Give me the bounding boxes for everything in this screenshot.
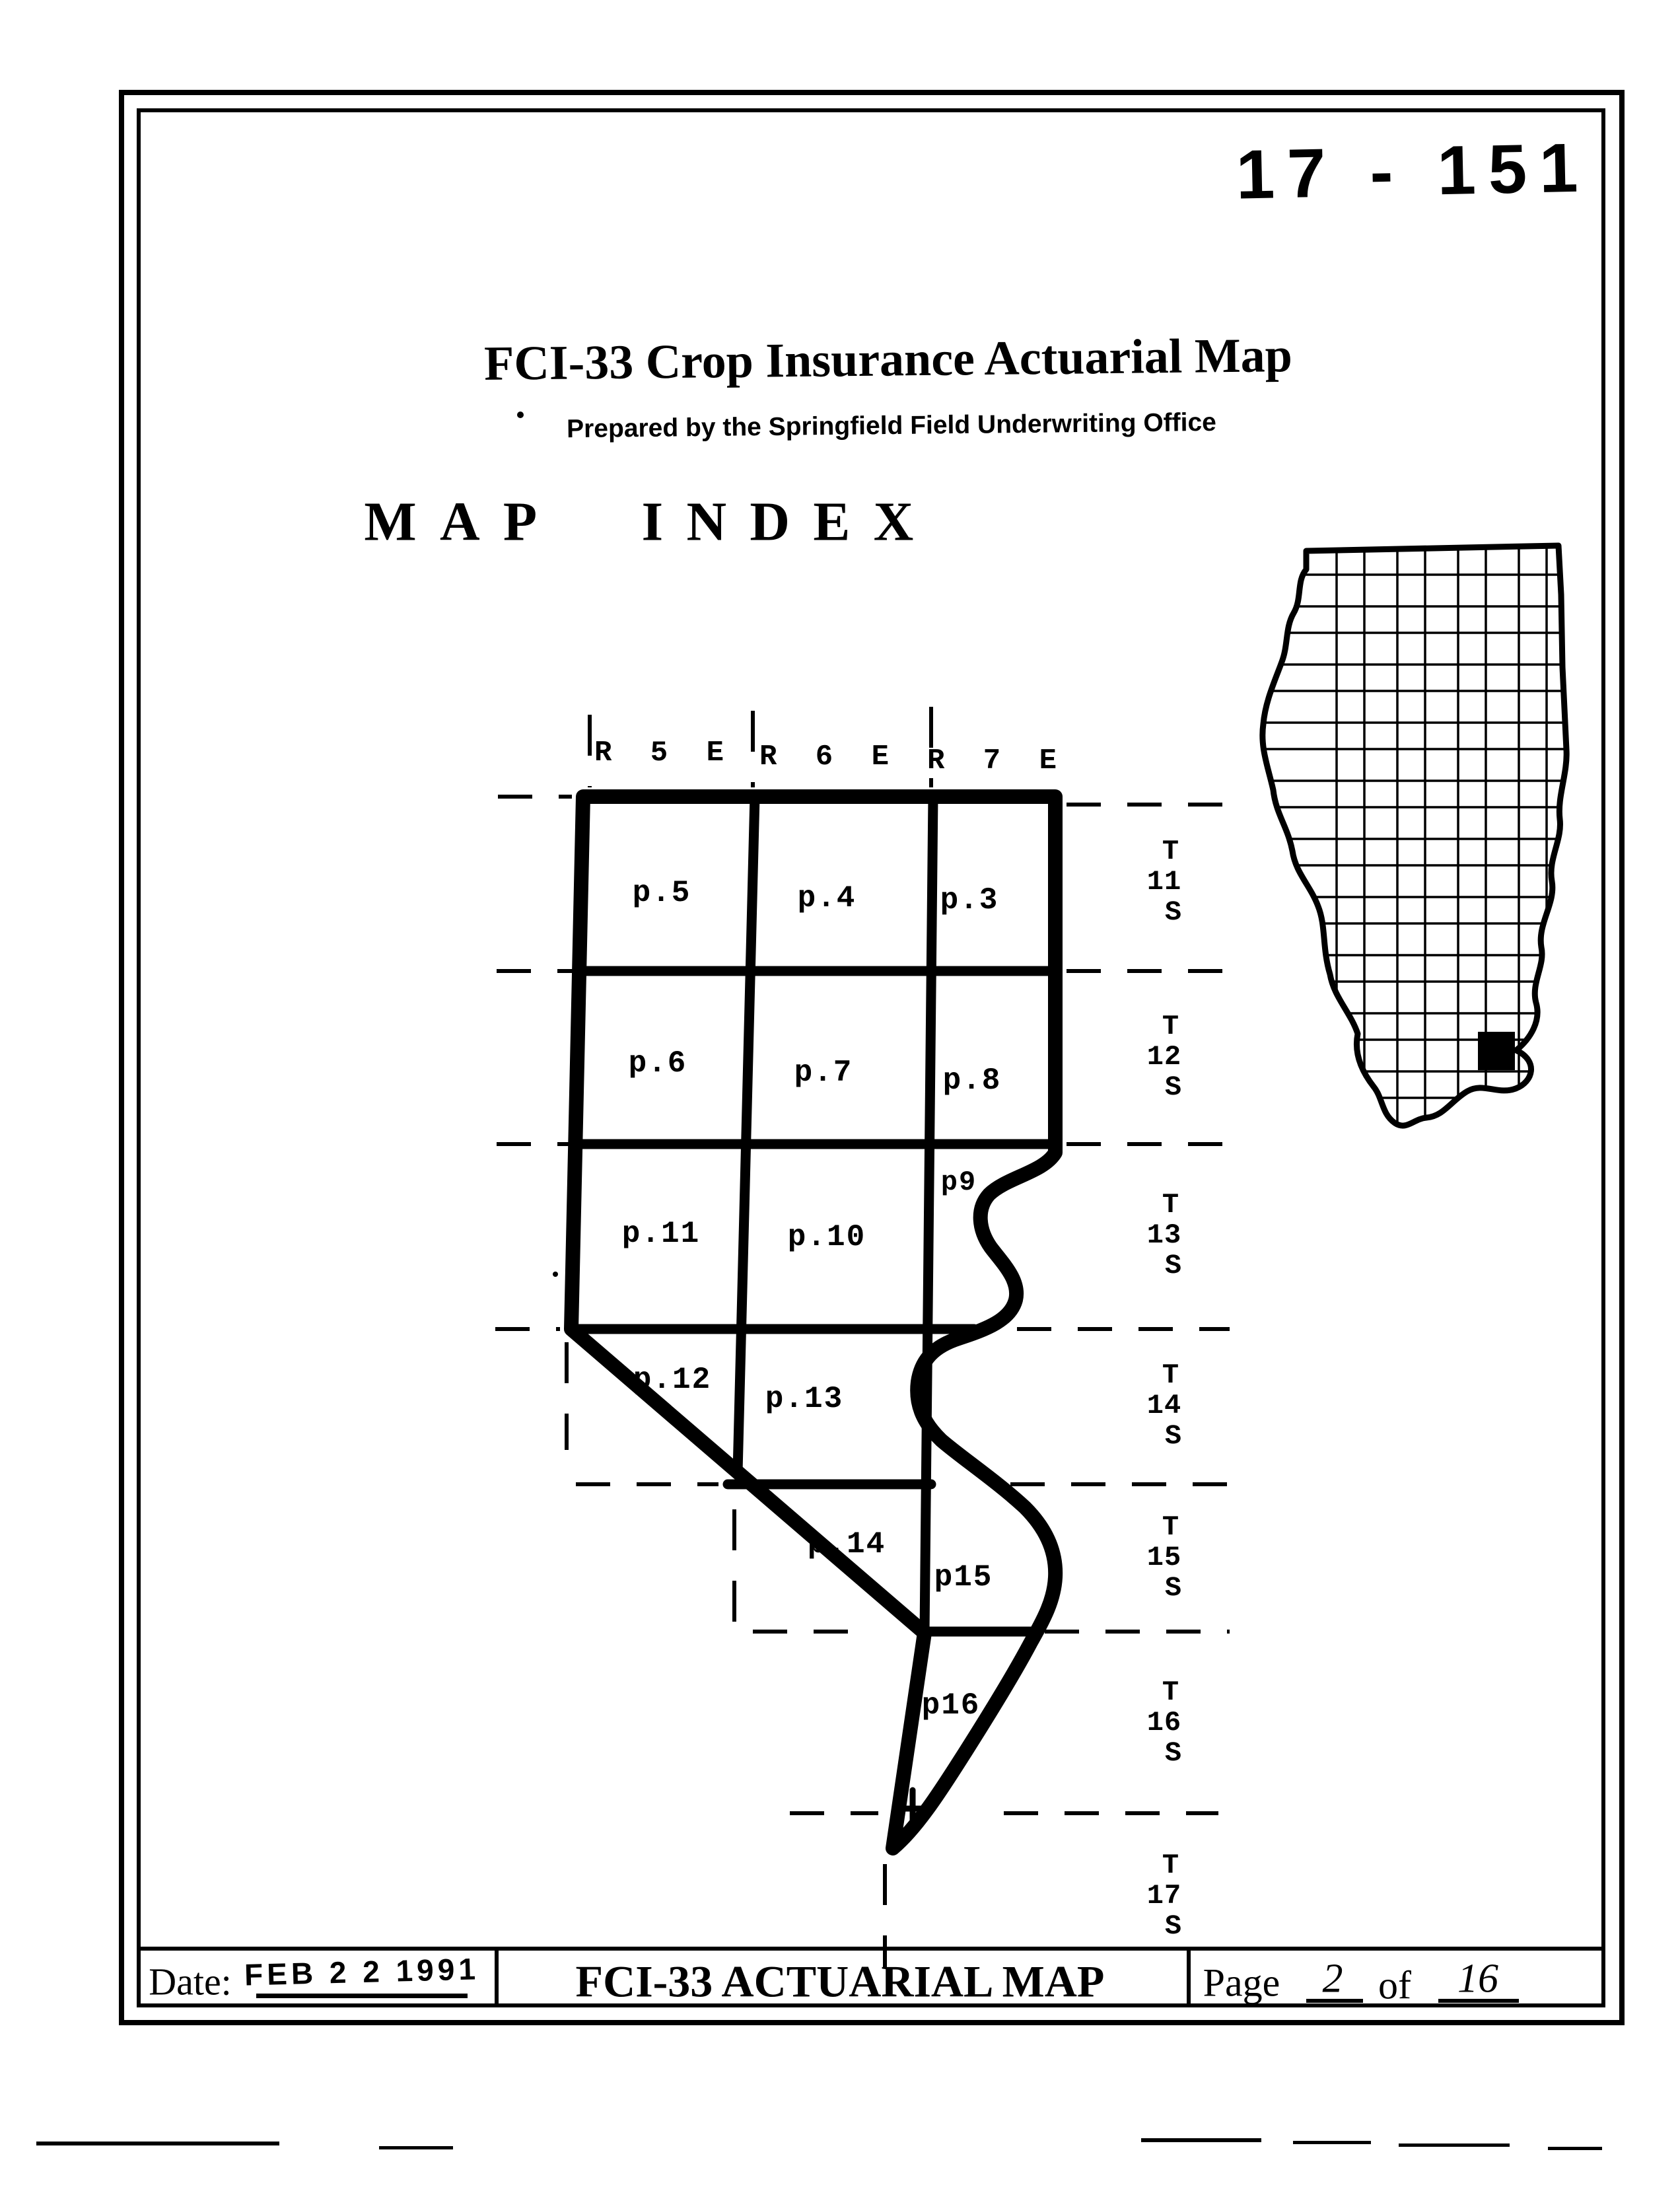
township-label-t14s: T (1162, 1359, 1179, 1391)
page-total-underline (1438, 1999, 1519, 2003)
township-label-t17s: S (1165, 1910, 1182, 1942)
township-label-t16s: T (1162, 1676, 1179, 1708)
township-label-t13s: S (1165, 1250, 1182, 1281)
township-label-t11s: T (1162, 836, 1179, 867)
map-outer-boundary (571, 797, 1055, 1848)
footer-title: FCI-33 ACTUARIAL MAP (576, 1956, 1105, 2008)
map-cell-label-p8: p.8 (943, 1063, 1002, 1098)
page-artwork (0, 0, 1680, 2197)
map-cell-label-p6: p.6 (629, 1046, 687, 1081)
township-label-t15s: S (1165, 1572, 1182, 1604)
range-label-r5e: R 5 E (594, 737, 734, 770)
dashed-township-lines (495, 797, 1230, 1813)
map-cell-label-p5: p.5 (633, 876, 691, 910)
township-label-t15s: 15 (1147, 1542, 1181, 1573)
township-label-t12s: S (1165, 1071, 1182, 1103)
township-label-t14s: S (1165, 1420, 1182, 1452)
township-label-t11s: 11 (1147, 866, 1181, 898)
township-label-t12s: 12 (1147, 1041, 1181, 1073)
township-label-t13s: 13 (1147, 1219, 1181, 1251)
map-cell-label-p7: p.7 (794, 1056, 853, 1090)
map-cell-label-p9: p9 (941, 1167, 977, 1198)
range-label-r7e: R 7 E (927, 744, 1067, 777)
page-total-handwritten: 16 (1457, 1956, 1498, 2003)
date-stamp: FEB 2 2 1991 (244, 1951, 479, 1992)
page-number-underline (1306, 1999, 1363, 2003)
county-code-stamp: 17 - 151 (1236, 128, 1592, 215)
map-cell-label-p12: p.12 (633, 1363, 711, 1397)
range-label-r6e: R 6 E (759, 740, 899, 774)
illinois-inset-map (1255, 542, 1572, 1130)
page-word-label: Page (1203, 1961, 1280, 2006)
township-label-t16s: 16 (1147, 1707, 1181, 1739)
township-label-t17s: T (1162, 1850, 1179, 1881)
township-label-t15s: T (1162, 1511, 1179, 1543)
township-label-t14s: 14 (1147, 1390, 1181, 1422)
map-cell-label-p16: p16 (922, 1688, 981, 1723)
map-cell-label-p3: p.3 (940, 883, 999, 918)
page-number-handwritten: 2 (1323, 1956, 1343, 2003)
inner-border (139, 110, 1603, 2005)
of-label: of (1378, 1963, 1411, 2009)
map-cell-label-p10: p.10 (788, 1220, 866, 1254)
map-index-heading: MAP INDEX (364, 490, 936, 554)
map-cell-label-p13: p.13 (765, 1382, 843, 1416)
map-cell-label-p11: p.11 (622, 1217, 700, 1251)
scanned-document-page: 17 - 151 FCI-33 Crop Insurance Actuarial… (0, 0, 1680, 2197)
highlighted-county (1478, 1032, 1515, 1070)
township-label-t11s: S (1165, 896, 1182, 928)
map-cell-label-p4: p.4 (798, 881, 857, 916)
township-label-t13s: T (1162, 1189, 1179, 1221)
township-label-t12s: T (1162, 1011, 1179, 1042)
township-label-t17s: 17 (1147, 1880, 1181, 1912)
scan-artifacts (36, 412, 1602, 2150)
date-underline (256, 1994, 468, 1998)
date-label: Date: (149, 1960, 232, 2004)
map-cell-label-p14: p.14 (808, 1527, 886, 1562)
page-title: FCI-33 Crop Insurance Actuarial Map (484, 328, 1293, 392)
map-cell-label-p15: p15 (934, 1560, 993, 1595)
township-label-t16s: S (1165, 1737, 1182, 1769)
